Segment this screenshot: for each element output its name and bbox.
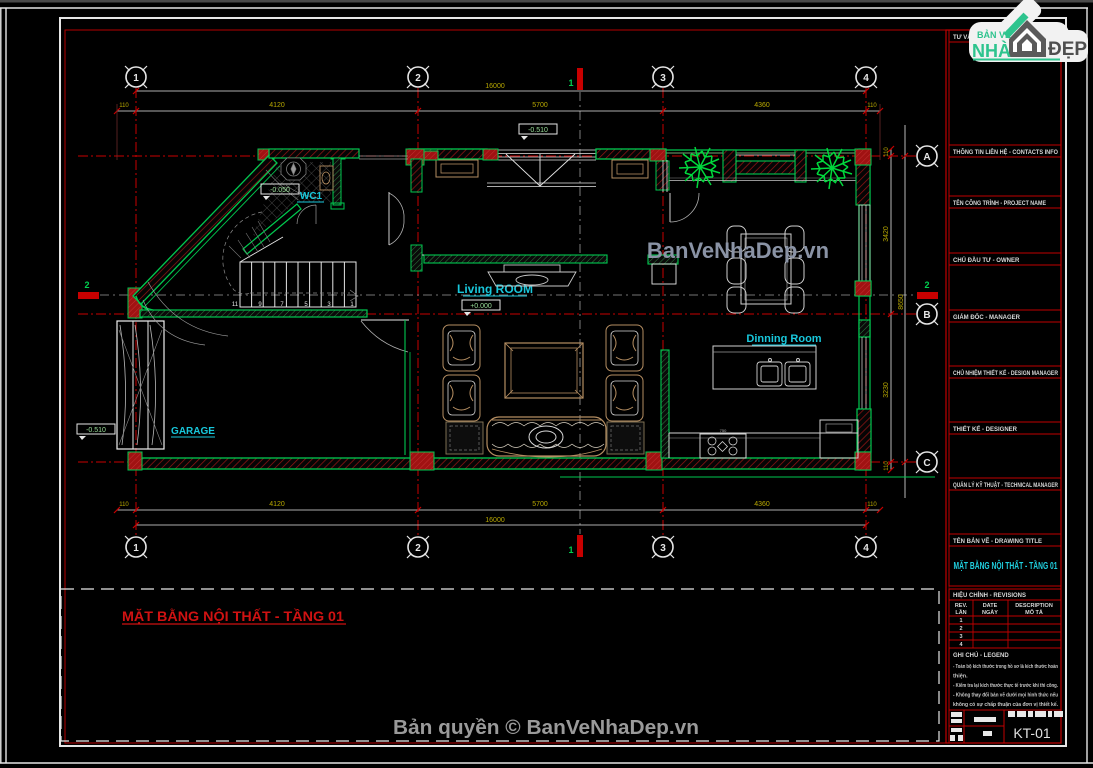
svg-text:CHỦ NHIỆM THIẾT KẾ - DESIGN MA: CHỦ NHIỆM THIẾT KẾ - DESIGN MANAGER bbox=[953, 369, 1059, 377]
svg-text:1: 1 bbox=[959, 618, 962, 624]
svg-text:DATE: DATE bbox=[983, 603, 998, 609]
svg-text:MẶT BẰNG NỘI THẤT - TẦNG 01: MẶT BẰNG NỘI THẤT - TẦNG 01 bbox=[122, 607, 344, 624]
svg-text:110: 110 bbox=[867, 502, 877, 508]
svg-text:Bản quyền © BanVeNhaDep.vn: Bản quyền © BanVeNhaDep.vn bbox=[393, 717, 699, 739]
svg-text:B: B bbox=[923, 310, 930, 321]
svg-text:8650: 8650 bbox=[898, 294, 905, 310]
svg-text:11: 11 bbox=[232, 302, 239, 308]
svg-text:2: 2 bbox=[959, 626, 962, 632]
svg-text:+0.000: +0.000 bbox=[470, 303, 492, 310]
svg-text:BanVeNhaDep.vn: BanVeNhaDep.vn bbox=[647, 238, 829, 263]
svg-text:A: A bbox=[923, 152, 930, 163]
svg-text:TÊN BẢN VẼ - DRAWING TITLE: TÊN BẢN VẼ - DRAWING TITLE bbox=[953, 537, 1042, 545]
svg-text:110: 110 bbox=[884, 147, 890, 157]
svg-text:BẢN VẼ: BẢN VẼ bbox=[977, 29, 1011, 40]
svg-text:Dinning Room: Dinning Room bbox=[746, 333, 821, 345]
svg-text:5700: 5700 bbox=[532, 102, 548, 109]
svg-text:1: 1 bbox=[568, 545, 573, 555]
svg-text:MẶT BẰNG NỘI THẤT - TẦNG 01: MẶT BẰNG NỘI THẤT - TẦNG 01 bbox=[954, 559, 1058, 572]
svg-text:MÔ TẢ: MÔ TẢ bbox=[1025, 608, 1043, 616]
svg-text:NHÀ: NHÀ bbox=[972, 40, 1011, 61]
svg-text:1: 1 bbox=[133, 543, 139, 554]
svg-text:5700: 5700 bbox=[532, 501, 548, 508]
svg-text:110: 110 bbox=[119, 502, 129, 508]
svg-text:TÊN CÔNG TRÌNH - PROJECT NAME: TÊN CÔNG TRÌNH - PROJECT NAME bbox=[953, 199, 1046, 207]
svg-text:750: 750 bbox=[720, 428, 727, 433]
svg-text:2: 2 bbox=[924, 280, 929, 290]
svg-text:không có sự chấp thuận của đơn: không có sự chấp thuận của đơn vị thiết … bbox=[953, 701, 1058, 708]
svg-text:-0.510: -0.510 bbox=[86, 427, 106, 434]
svg-text:thiện.: thiện. bbox=[953, 674, 968, 680]
svg-text:2: 2 bbox=[84, 280, 89, 290]
svg-text:16000: 16000 bbox=[485, 83, 505, 90]
svg-text:NGÀY: NGÀY bbox=[982, 609, 998, 616]
svg-text:110: 110 bbox=[884, 461, 890, 471]
svg-text:1: 1 bbox=[568, 78, 573, 88]
svg-text:110: 110 bbox=[119, 103, 129, 109]
svg-text:THIẾT KẾ - DESIGNER: THIẾT KẾ - DESIGNER bbox=[953, 426, 1018, 433]
svg-text:ĐẸP: ĐẸP bbox=[1048, 39, 1087, 60]
svg-text:2: 2 bbox=[415, 73, 421, 84]
svg-text:- Toàn bộ kích thước trong hồ: - Toàn bộ kích thước trong hồ sơ là kích… bbox=[953, 664, 1058, 670]
svg-text:- Không thay đổi bản vẽ dưới m: - Không thay đổi bản vẽ dưới mọi hình th… bbox=[953, 692, 1058, 699]
svg-text:C: C bbox=[923, 458, 930, 469]
svg-text:3230: 3230 bbox=[883, 382, 890, 398]
svg-text:4: 4 bbox=[863, 73, 869, 84]
svg-text:-0.050: -0.050 bbox=[270, 187, 290, 194]
svg-text:WC1: WC1 bbox=[300, 191, 323, 202]
svg-text:QUẢN LÝ KỸ THUẬT - TECHNICAL M: QUẢN LÝ KỸ THUẬT - TECHNICAL MANAGER bbox=[953, 482, 1059, 489]
svg-text:GHI CHÚ - LEGEND: GHI CHÚ - LEGEND bbox=[953, 652, 1009, 659]
svg-text:REV.: REV. bbox=[955, 603, 968, 609]
svg-text:GARAGE: GARAGE bbox=[171, 426, 215, 437]
svg-text:GIÁM ĐỐC - MANAGER: GIÁM ĐỐC - MANAGER bbox=[953, 314, 1021, 321]
svg-text:3: 3 bbox=[660, 543, 666, 554]
svg-text:1: 1 bbox=[133, 73, 139, 84]
svg-text:4: 4 bbox=[863, 543, 869, 554]
svg-text:3: 3 bbox=[660, 73, 666, 84]
svg-text:3: 3 bbox=[959, 634, 962, 640]
svg-text:-0.510: -0.510 bbox=[528, 127, 548, 134]
svg-text:CHỦ ĐẦU TƯ - OWNER: CHỦ ĐẦU TƯ - OWNER bbox=[953, 257, 1020, 264]
svg-text:4120: 4120 bbox=[269, 501, 285, 508]
svg-text:2: 2 bbox=[415, 543, 421, 554]
svg-text:THÔNG TIN LIÊN HỆ - CONTACTS I: THÔNG TIN LIÊN HỆ - CONTACTS INFO bbox=[953, 148, 1058, 156]
svg-text:16000: 16000 bbox=[485, 517, 505, 524]
svg-text:LẦN: LẦN bbox=[955, 609, 966, 616]
svg-text:4360: 4360 bbox=[754, 501, 770, 508]
svg-text:110: 110 bbox=[867, 103, 877, 109]
svg-text:DESCRIPTION: DESCRIPTION bbox=[1015, 603, 1053, 609]
svg-text:- Kiểm tra lại kích thước thực: - Kiểm tra lại kích thước thực tế trước … bbox=[953, 682, 1058, 689]
svg-text:4120: 4120 bbox=[269, 102, 285, 109]
svg-text:4360: 4360 bbox=[754, 102, 770, 109]
svg-text:HIỆU CHỈNH - REVISIONS: HIỆU CHỈNH - REVISIONS bbox=[953, 591, 1026, 599]
svg-text:3420: 3420 bbox=[883, 226, 890, 242]
svg-text:KT-01: KT-01 bbox=[1013, 725, 1051, 741]
